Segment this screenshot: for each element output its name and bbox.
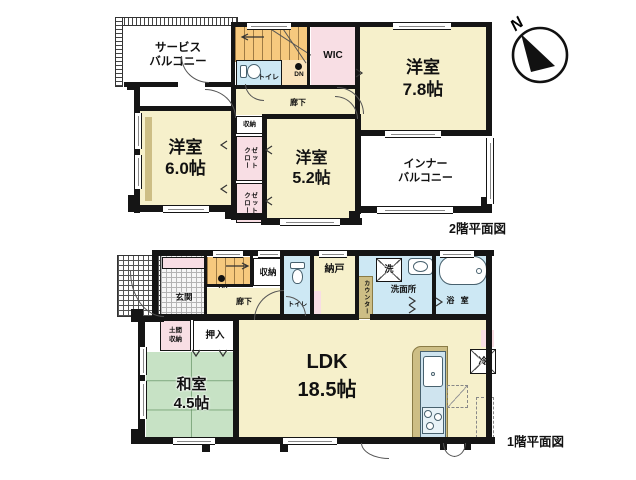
washer-pan: 洗 xyxy=(376,258,402,282)
toilet-tank-icon xyxy=(240,65,247,78)
floor1-caption: 1階平面図 xyxy=(507,431,564,450)
door-chevron-icon xyxy=(409,305,418,314)
burner-icon xyxy=(424,410,432,418)
room-service-balcony: サービス バルコニー xyxy=(123,26,233,84)
room-label: クロー ゼット xyxy=(242,192,256,215)
washbasin-bowl-icon xyxy=(413,261,428,272)
compass: N xyxy=(502,6,576,88)
room-label: 廊下 xyxy=(290,98,306,108)
window xyxy=(139,347,147,375)
window xyxy=(486,138,494,204)
wall xyxy=(128,195,138,212)
window xyxy=(247,22,291,30)
door-chevron-icon xyxy=(266,146,275,155)
door-chevron-icon xyxy=(219,349,228,358)
door-chevron-icon xyxy=(356,69,365,78)
storage-2f: 収納 xyxy=(236,116,263,134)
toilet-bowl-icon xyxy=(292,269,303,284)
door-chevron-icon xyxy=(436,298,445,307)
wall xyxy=(127,82,136,90)
wall xyxy=(310,253,314,316)
window xyxy=(173,437,215,445)
floorplan-canvas: サービス バルコニー DN トイレ WIC 洋室 7.8帖 廊下 洋室 6.0帖… xyxy=(0,0,636,480)
door-chevron-icon xyxy=(221,141,230,150)
room-bedroom-6-0: 洋室 6.0帖 xyxy=(140,111,231,205)
wall xyxy=(307,25,310,87)
room-label: クロー ゼット xyxy=(242,147,256,170)
faucet-icon xyxy=(431,372,435,376)
door-chevron-icon xyxy=(266,197,275,206)
room-label: 玄関 xyxy=(161,292,207,303)
wall xyxy=(205,284,252,287)
window xyxy=(280,218,340,226)
stair-pole-dot xyxy=(295,63,302,70)
wall xyxy=(131,309,143,322)
window xyxy=(134,113,142,149)
wall xyxy=(225,205,237,219)
window xyxy=(385,130,441,138)
wall xyxy=(131,429,143,444)
wall xyxy=(355,253,359,316)
window xyxy=(134,155,142,189)
cupboard-space xyxy=(447,385,468,408)
burner-icon xyxy=(434,413,442,421)
stair-direction-arrow xyxy=(224,261,252,271)
window-ledge xyxy=(145,117,152,201)
window xyxy=(163,205,209,213)
window xyxy=(319,250,347,258)
wall xyxy=(349,211,360,225)
door-chevron-icon xyxy=(221,185,230,194)
wall xyxy=(486,22,492,136)
window xyxy=(213,250,243,258)
room-label: LDK 18.5帖 xyxy=(252,348,402,404)
door-arc xyxy=(454,443,466,457)
room-label: 収納 xyxy=(243,121,256,129)
room-label: 廊下 xyxy=(236,297,252,307)
balcony-railing xyxy=(115,17,123,87)
room-label: WIC xyxy=(323,50,342,63)
window xyxy=(393,22,451,30)
room-label: 納戸 xyxy=(314,264,355,277)
room-wic: WIC xyxy=(311,27,355,86)
stair-direction-arrow xyxy=(238,32,266,42)
room-inner-balcony: インナー バルコニー xyxy=(364,136,487,207)
shoe-cabinet xyxy=(162,257,206,269)
stair-pole-dot xyxy=(218,275,225,282)
wall xyxy=(355,114,361,214)
room-label: 収納 xyxy=(259,267,276,278)
window xyxy=(440,250,474,258)
room-bedroom-5-2: 洋室 5.2帖 xyxy=(267,119,356,219)
room-label: 洗面所 xyxy=(375,284,432,295)
room-label: インナー バルコニー xyxy=(398,158,453,186)
fridge-space: 冷 xyxy=(470,349,496,374)
room-washitsu: 和室 4.5帖 xyxy=(146,352,237,438)
room-label: 洋室 6.0帖 xyxy=(165,137,206,180)
oshiire-closet: 押入 xyxy=(193,320,237,351)
room-label: 洋室 7.8帖 xyxy=(403,57,444,100)
room-label: トイレ xyxy=(258,74,279,83)
closet-upper: クロー ゼット xyxy=(236,136,263,181)
storage-1f: 収納 xyxy=(253,258,283,286)
window xyxy=(258,250,280,258)
balcony-railing xyxy=(119,17,238,26)
door-arc xyxy=(361,443,389,459)
toilet-bowl-icon xyxy=(247,64,261,79)
wall xyxy=(233,320,239,437)
wall xyxy=(138,316,145,444)
room-label: カウンター xyxy=(362,280,369,315)
entrance-dirt-storage: 土間 収納 xyxy=(160,320,191,351)
floor2-caption: 2階平面図 xyxy=(449,218,506,237)
wall xyxy=(486,250,492,444)
window xyxy=(139,381,147,419)
toilet-tank-icon xyxy=(290,262,305,269)
wall xyxy=(205,82,235,87)
room-label: 洋室 5.2帖 xyxy=(292,149,330,189)
window xyxy=(283,437,337,445)
counter: カウンター xyxy=(358,276,373,319)
room-label: 和室 4.5帖 xyxy=(174,376,210,414)
window xyxy=(377,206,453,214)
burner-icon xyxy=(426,422,434,430)
door-chevron-icon xyxy=(192,349,201,358)
room-label: 土間 収納 xyxy=(169,327,182,343)
bathtub-drain-icon xyxy=(476,268,482,274)
room-label: 洗 xyxy=(384,264,393,275)
wall xyxy=(231,22,235,88)
wall xyxy=(486,362,492,373)
room-bedroom-7-8: 洋室 7.8帖 xyxy=(360,27,486,130)
wall xyxy=(370,314,492,320)
room-label: 押入 xyxy=(205,330,224,342)
nando-pink-nook xyxy=(313,291,321,315)
